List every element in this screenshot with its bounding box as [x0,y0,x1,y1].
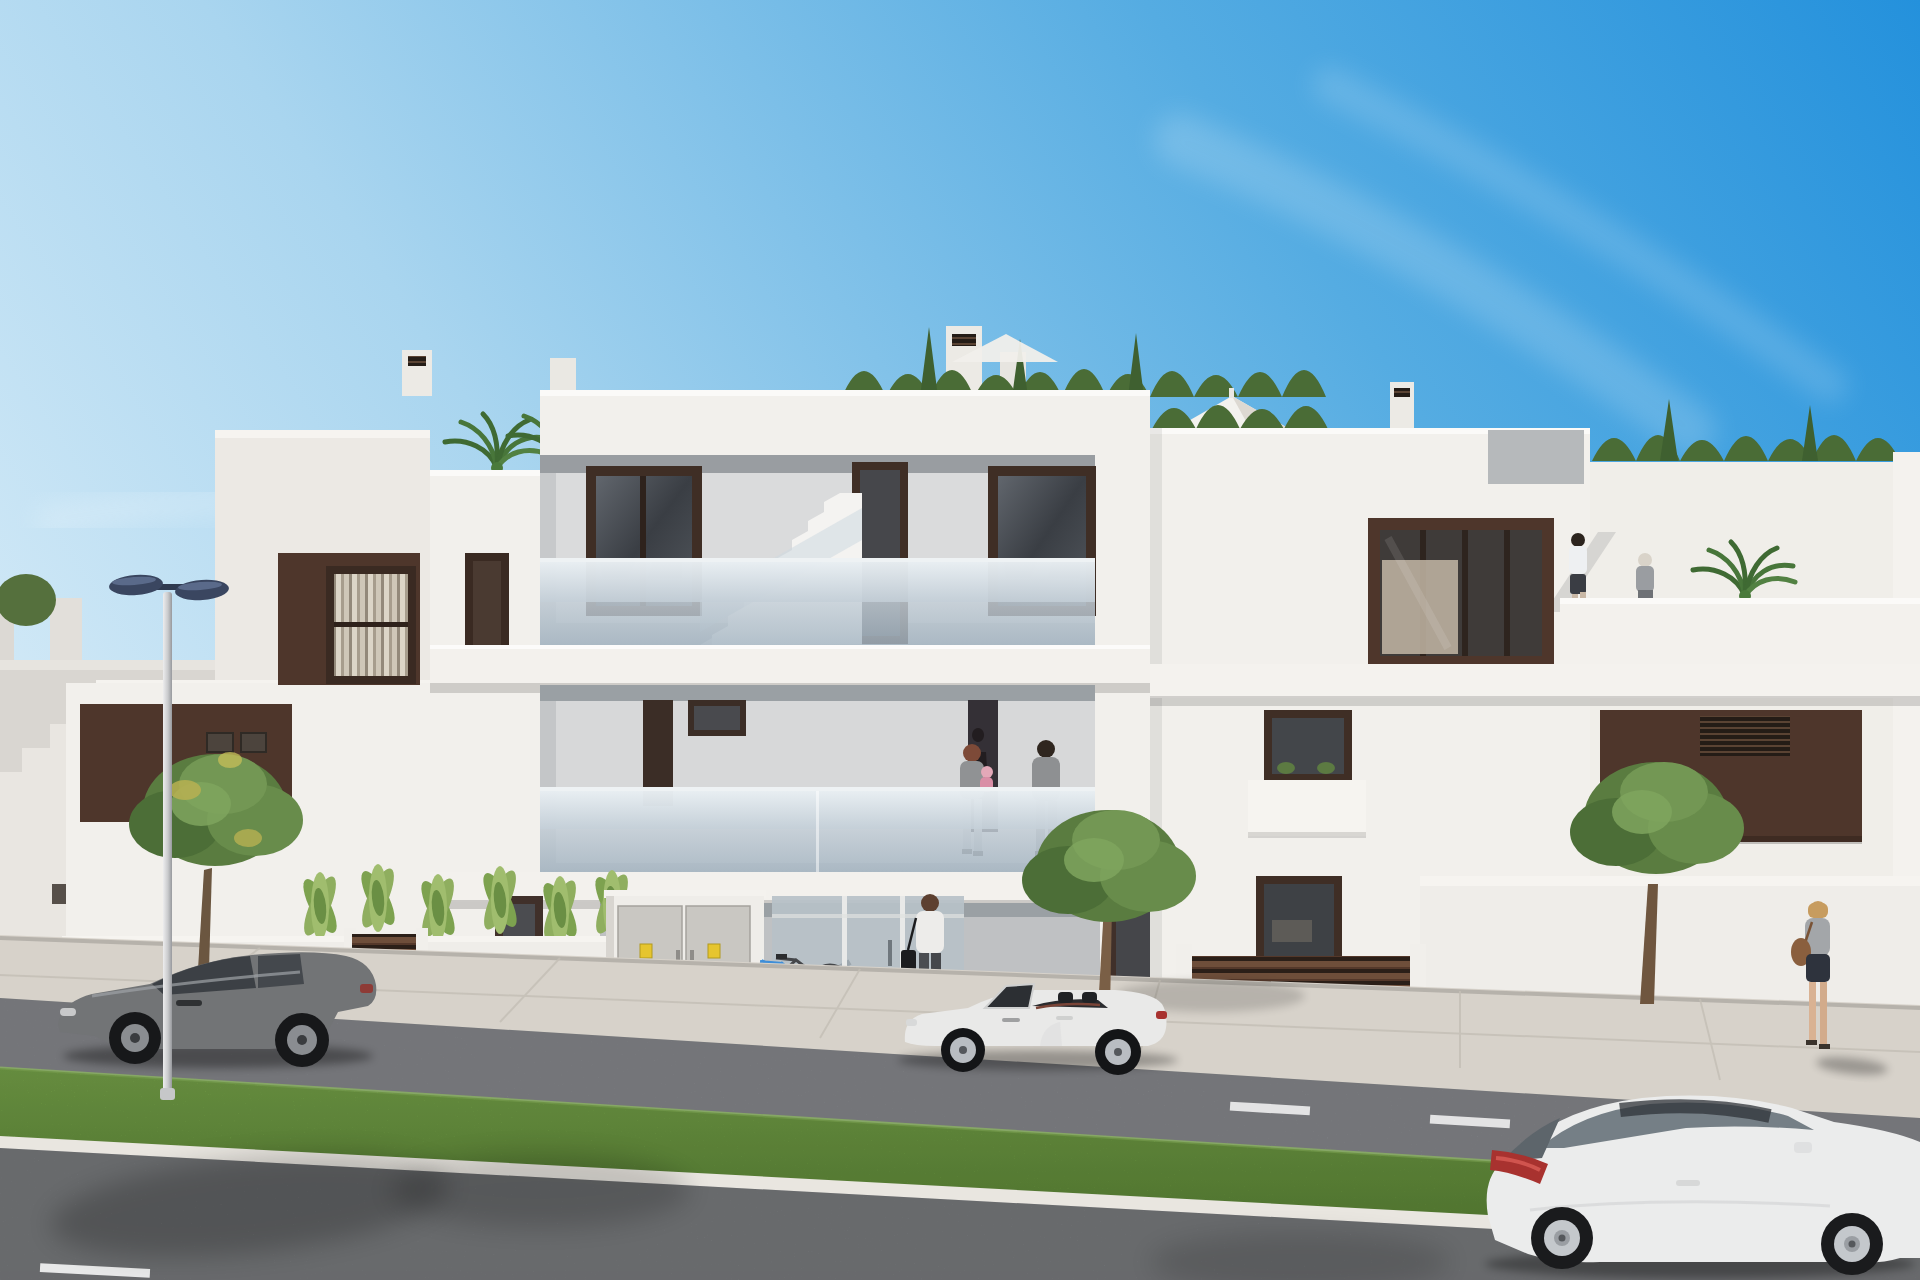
warning-sticker [640,944,652,958]
taillight [1156,1011,1167,1019]
floor-slab [430,645,1150,683]
skirt [1806,954,1830,982]
woman-on-terrace [1636,553,1654,602]
tree-shadow [390,1152,690,1228]
window [241,733,266,752]
mirror [1794,1142,1812,1153]
headlight [60,1008,76,1016]
woman-head [963,744,981,762]
balcony-parapet [1248,780,1366,836]
balcony-glass-balustrade [540,562,1095,645]
shirt [916,911,944,953]
transom-window [688,700,746,736]
taillight [360,984,373,993]
door-handle [1676,1180,1700,1186]
door-handle [888,940,892,966]
window [207,733,233,752]
sill-plant [1277,762,1295,774]
right-wing [1150,428,1920,1020]
warning-sticker [708,944,720,958]
interior-furniture [1272,920,1312,942]
brown-glass-section [1368,518,1554,668]
baby [981,766,993,778]
side-vent [176,1000,202,1006]
headrest [1082,992,1097,1003]
window [1256,876,1342,966]
sill-plant [1317,762,1335,774]
glass-divider [816,791,819,872]
headlight [906,1019,917,1026]
side-vent [1002,1018,1020,1022]
door-handle [1056,1016,1073,1020]
saddle [776,954,787,959]
center-block [430,390,1164,1015]
render-canvas [0,0,1920,1280]
scene-architectural-render [0,0,1920,1280]
lamp-pole [163,592,172,1096]
window [1264,710,1352,782]
man-head [1037,740,1055,758]
metal-screen-panel [1488,430,1584,484]
floor-slab [1150,664,1920,698]
upper-balcony [540,455,1096,645]
vent-grille [1700,716,1790,756]
curtain-window [326,566,416,684]
chimney [50,598,82,660]
middle-balcony [540,685,1095,873]
bag [901,950,916,971]
headrest [1058,992,1073,1003]
